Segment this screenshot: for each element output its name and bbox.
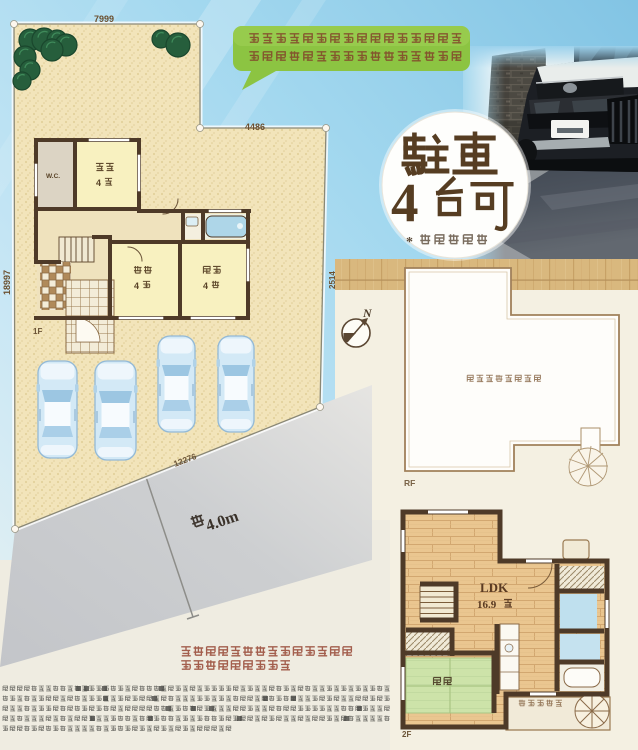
svg-text:RF: RF [404,478,415,488]
svg-text:W.C.: W.C. [46,173,60,180]
svg-text:4486: 4486 [245,122,265,132]
svg-text:2514: 2514 [328,271,337,289]
svg-text:N: N [362,306,373,320]
svg-text:16.9: 16.9 [477,599,497,611]
svg-text:1F: 1F [33,327,42,336]
svg-text:4: 4 [203,281,208,291]
svg-text:7999: 7999 [94,14,114,24]
svg-text:*: * [406,235,413,250]
svg-text:LDK: LDK [480,580,509,595]
svg-text:18997: 18997 [2,270,12,295]
svg-text:4: 4 [96,178,101,188]
svg-text:4: 4 [391,172,419,233]
svg-text:2F: 2F [402,730,411,739]
svg-text:4: 4 [134,281,139,291]
